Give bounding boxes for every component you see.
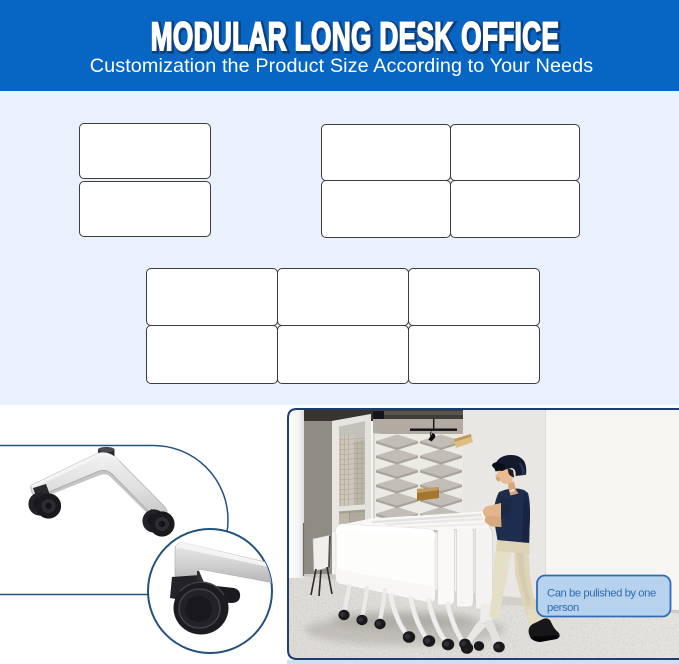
- svg-text:person: person: [547, 602, 579, 614]
- svg-text:MODULAR LONG DESK OFFICE: MODULAR LONG DESK OFFICE: [151, 16, 560, 58]
- svg-text:Can be pulished by one: Can be pulished by one: [547, 588, 656, 600]
